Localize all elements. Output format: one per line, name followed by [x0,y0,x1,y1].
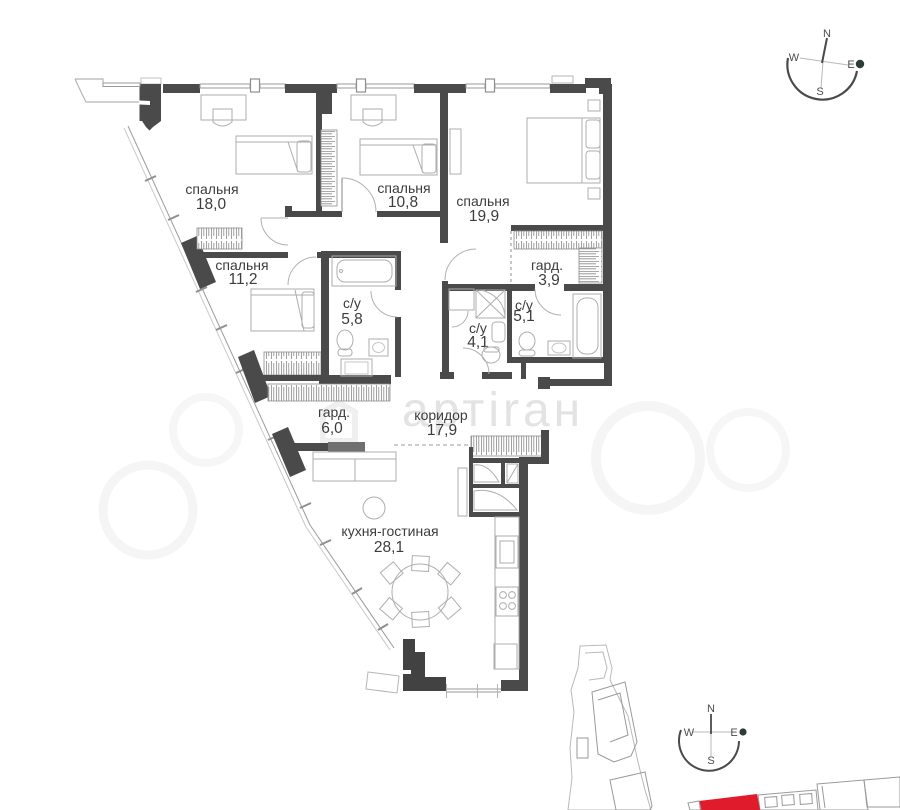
svg-text:10,8: 10,8 [388,194,418,211]
svg-text:спальня: спальня [185,181,238,197]
svg-text:3,9: 3,9 [538,272,560,289]
svg-text:гард.: гард. [318,404,350,420]
svg-text:N: N [823,28,831,40]
svg-text:кухня-гостиная: кухня-гостиная [341,523,438,539]
svg-text:E: E [847,59,854,71]
svg-text:5,8: 5,8 [341,311,363,328]
svg-text:28,1: 28,1 [374,539,404,556]
svg-text:коридор: коридор [414,407,468,423]
svg-text:18,0: 18,0 [196,196,227,213]
svg-text:гард.: гард. [531,257,563,273]
svg-text:E: E [730,727,737,739]
svg-text:спальня: спальня [456,193,509,209]
svg-text:19,9: 19,9 [469,208,499,225]
svg-text:W: W [789,52,800,64]
svg-text:11,2: 11,2 [228,271,257,288]
svg-text:5,1: 5,1 [513,308,535,325]
svg-text:S: S [816,86,823,98]
svg-text:с/у: с/у [343,295,361,311]
svg-text:6,0: 6,0 [321,420,343,437]
svg-text:S: S [707,755,714,767]
svg-text:W: W [684,727,695,739]
svg-text:17,9: 17,9 [427,422,457,439]
svg-text:N: N [707,703,715,715]
